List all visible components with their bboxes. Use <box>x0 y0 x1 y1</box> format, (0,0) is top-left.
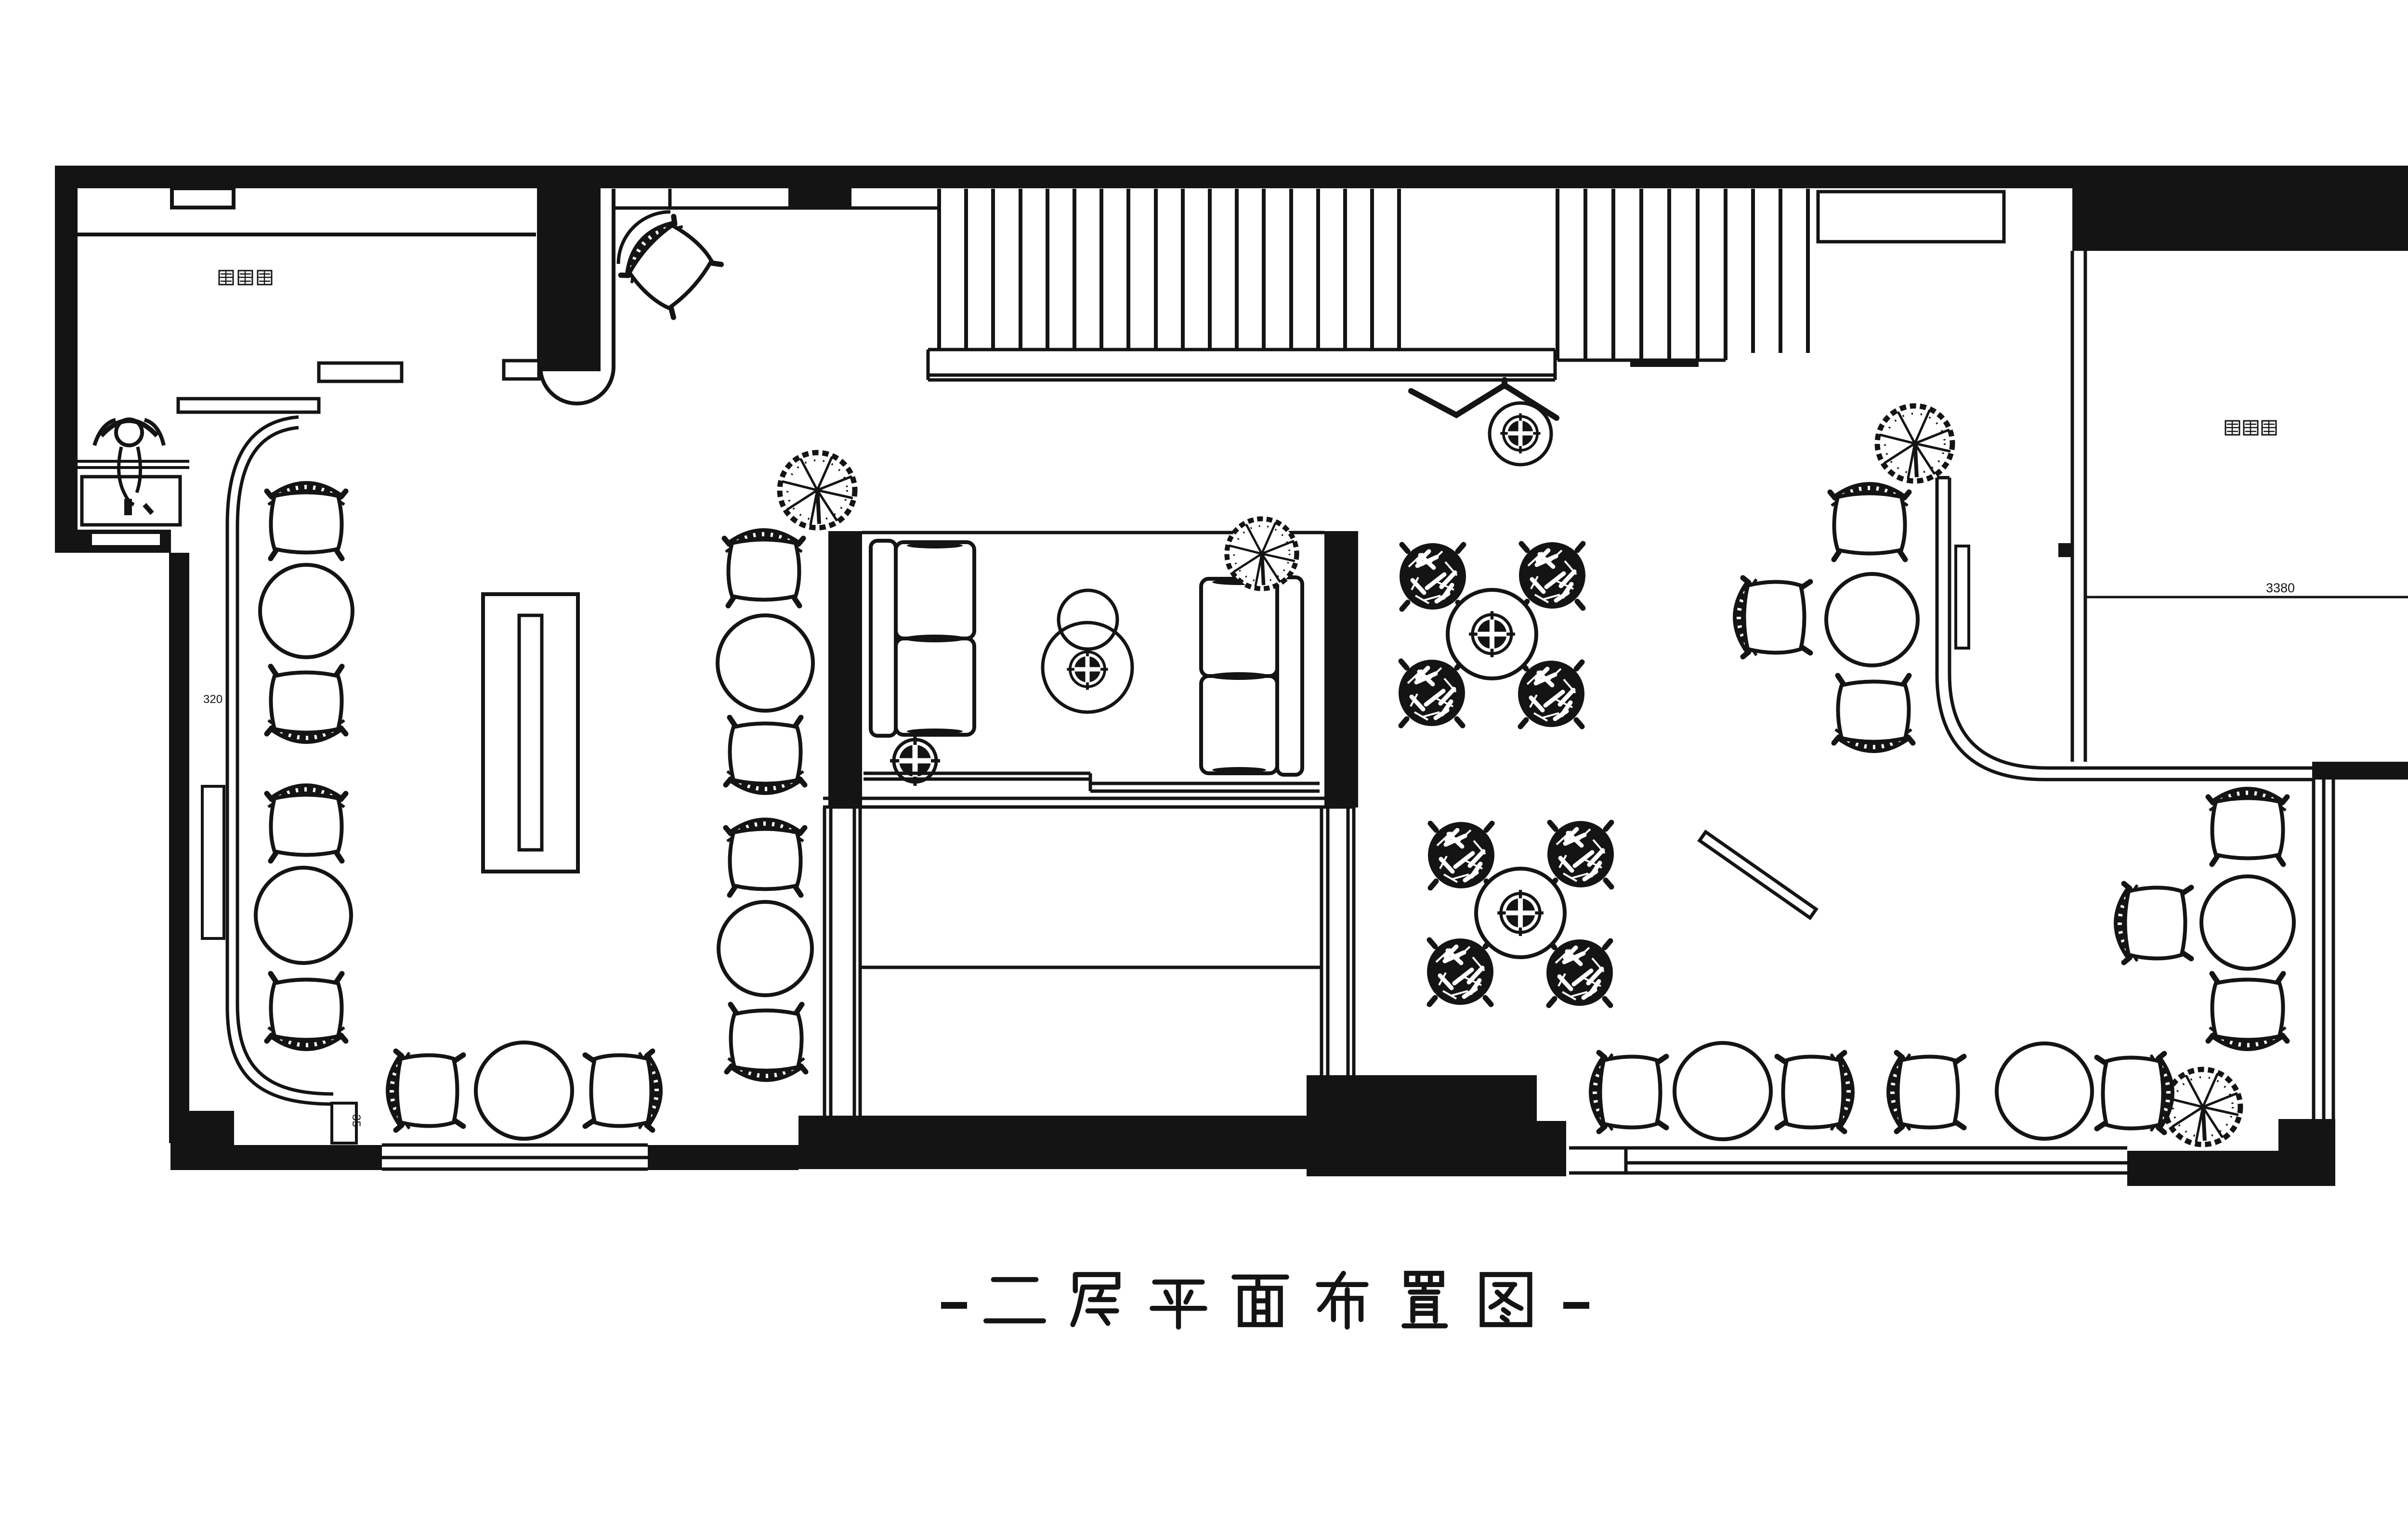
svg-text:320: 320 <box>203 693 222 706</box>
svg-text:3380: 3380 <box>2266 581 2295 595</box>
svg-text:35: 35 <box>350 1114 363 1127</box>
